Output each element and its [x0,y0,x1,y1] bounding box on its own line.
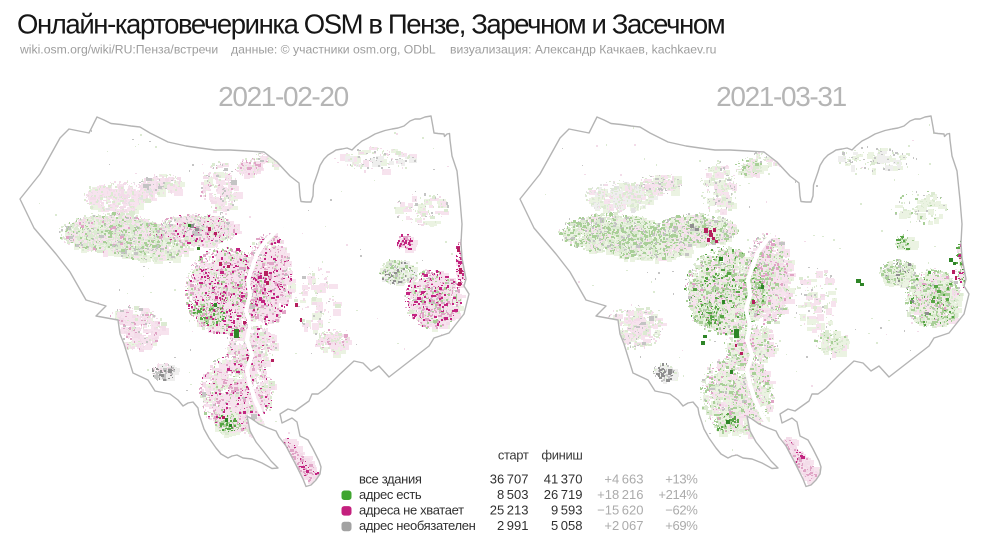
svg-text:старт: старт [498,448,529,463]
svg-text:адрес есть: адрес есть [359,487,422,502]
svg-text:26 719: 26 719 [544,487,583,502]
svg-text:−62%: −62% [665,503,698,518]
svg-text:+2 067: +2 067 [604,518,643,533]
svg-text:финиш: финиш [541,448,582,463]
svg-text:25 213: 25 213 [490,503,529,518]
svg-text:+4 663: +4 663 [604,471,643,486]
svg-text:36 707: 36 707 [490,471,529,486]
svg-text:41 370: 41 370 [544,471,583,486]
svg-text:2021-02-20: 2021-02-20 [218,81,349,112]
svg-text:5 058: 5 058 [551,518,583,533]
svg-text:9 593: 9 593 [551,503,583,518]
svg-text:все здания: все здания [359,471,422,486]
svg-text:адреса не хватает: адреса не хватает [359,503,464,518]
svg-text:+214%: +214% [658,487,698,502]
svg-text:8 503: 8 503 [497,487,529,502]
svg-text:Онлайн-картовечеринка OSM в Пе: Онлайн-картовечеринка OSM в Пензе, Зареч… [17,9,725,40]
svg-text:+18 216: +18 216 [597,487,643,502]
svg-text:+69%: +69% [665,518,698,533]
svg-text:2021-03-31: 2021-03-31 [716,81,847,112]
svg-text:wiki.osm.org/wiki/RU:Пенза/вст: wiki.osm.org/wiki/RU:Пенза/встречиданные… [19,43,716,57]
svg-text:+13%: +13% [665,471,698,486]
svg-text:2 991: 2 991 [497,518,529,533]
svg-text:−15 620: −15 620 [597,503,643,518]
svg-text:адрес необязателен: адрес необязателен [359,518,476,533]
